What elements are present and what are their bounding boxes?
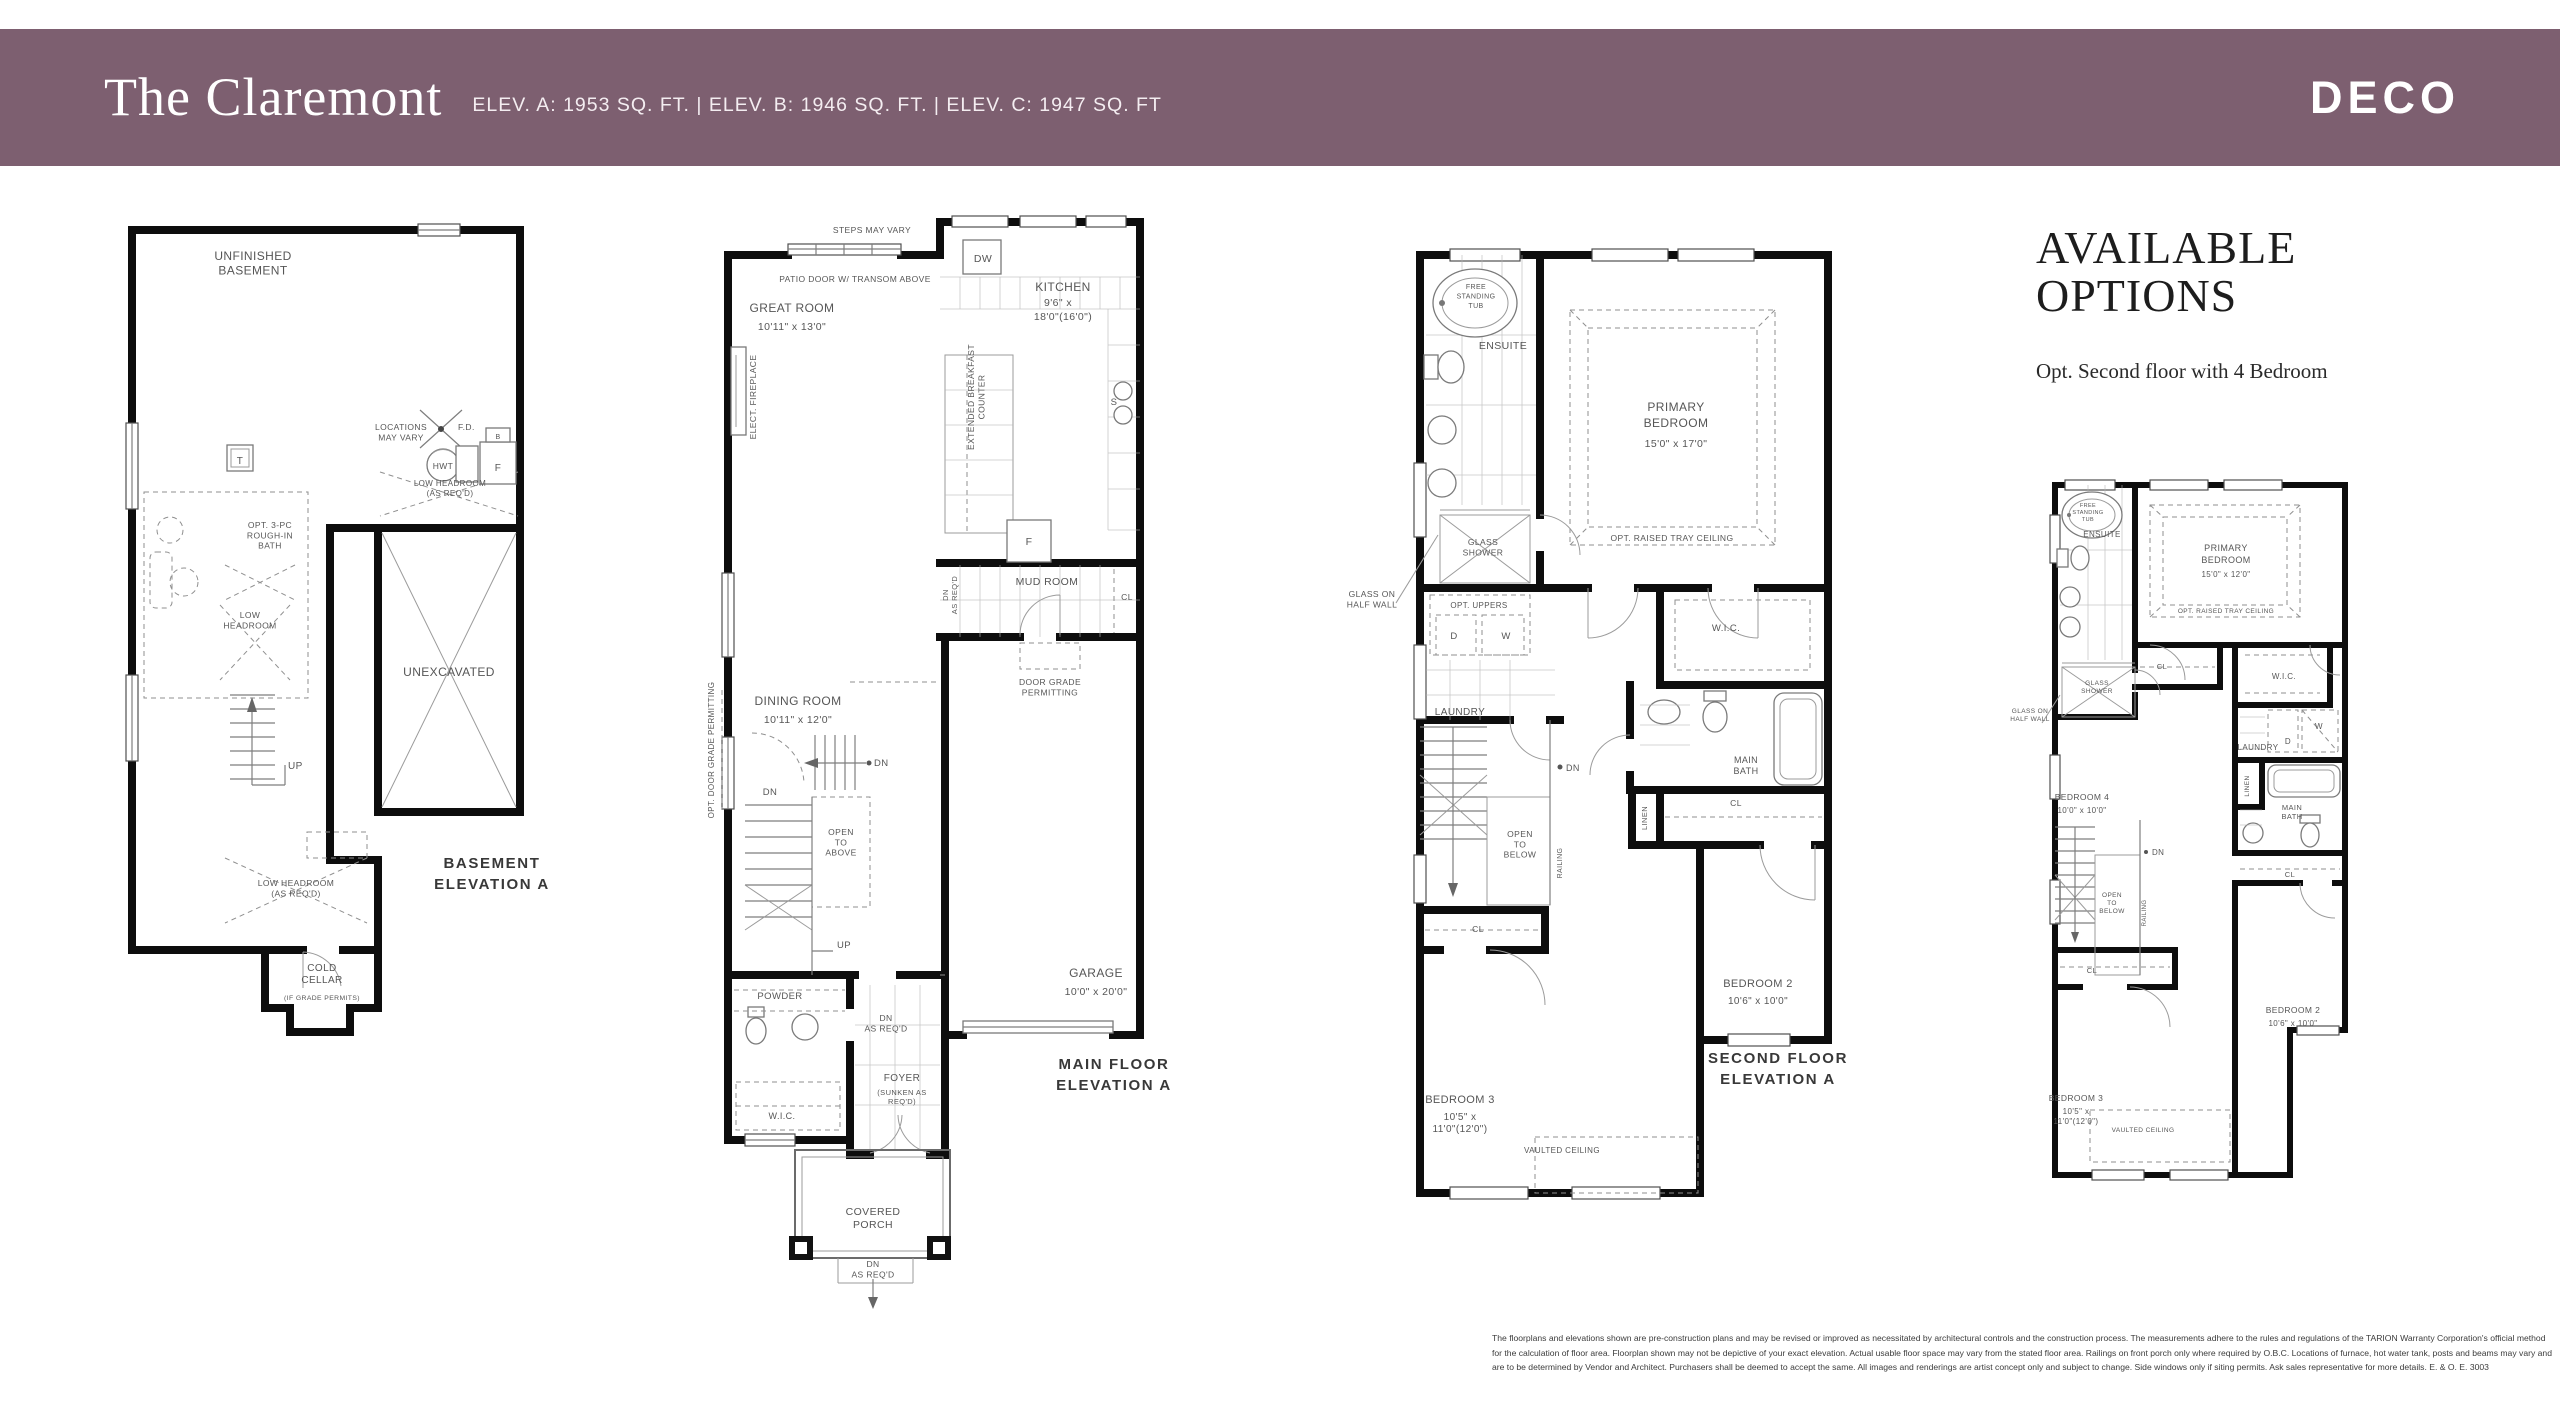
available-options: AVAILABLE OPTIONS Opt. Second floor with… — [2036, 224, 2328, 384]
plan-label: D — [1450, 631, 1457, 642]
main-floor-plan: STEPS MAY VARYPATIO DOOR W/ TRANSOM ABOV… — [690, 185, 1170, 1315]
plan-label: DN — [763, 787, 778, 798]
plan-label: DNAS REQ'D — [851, 1259, 894, 1279]
plan-label: F — [495, 463, 502, 474]
plan-label: DW — [974, 253, 992, 265]
plan-label: UP — [837, 940, 851, 951]
plan-label: UNFINISHEDBASEMENT — [214, 249, 291, 278]
elevation-specs: ELEV. A: 1953 SQ. FT. | ELEV. B: 1946 SQ… — [472, 94, 1161, 117]
plan-label: GARAGE — [1069, 966, 1123, 980]
plan-label: UNEXCAVATED — [403, 665, 495, 679]
plan-label: W — [2315, 722, 2323, 731]
plan-label: BEDROOM 2 — [2266, 1005, 2321, 1015]
main-floor-details — [722, 216, 1140, 1309]
plan-label: DN — [1566, 763, 1580, 773]
plan-label: DINING ROOM — [754, 694, 841, 708]
plan-label: MUD ROOM — [1016, 576, 1079, 588]
second-floor-plan: FREESTANDINGTUBENSUITEGLASS ONHALF WALLG… — [1330, 215, 1900, 1205]
plan-label: CL — [1472, 924, 1484, 934]
plan-label: 9'6" x — [1044, 297, 1072, 309]
plan-label: T — [237, 456, 244, 467]
plan-label: 15'0" x 17'0" — [1645, 438, 1708, 450]
plan-label: COVEREDPORCH — [846, 1206, 901, 1231]
disclaimer: The floorplans and elevations shown are … — [1492, 1331, 2442, 1375]
plan-label: KITCHEN — [1035, 280, 1090, 294]
plan-label: B — [495, 434, 500, 441]
plan-label: PATIO DOOR W/ TRANSOM ABOVE — [779, 274, 931, 284]
plan-label: (IF GRADE PERMITS) — [284, 995, 360, 1002]
plan-label: (SUNKEN ASREQ'D) — [877, 1088, 926, 1106]
basement-details — [126, 224, 518, 988]
floorplan-sheet: { "header": { "title": "The Claremont", … — [0, 0, 2560, 1408]
disclaimer-line: for the calculation of floor area. Floor… — [1492, 1346, 2442, 1361]
plan-label: 10'11" x 12'0" — [764, 714, 832, 726]
plan-label: POWDER — [757, 991, 802, 1002]
plan-label: BASEMENTELEVATION A — [434, 855, 550, 893]
header-bar: The Claremont ELEV. A: 1953 SQ. FT. | EL… — [0, 29, 2560, 166]
plan-label: 15'0" x 12'0" — [2201, 570, 2250, 579]
plan-label: CL — [2157, 662, 2167, 671]
plan-label: GLASS ONHALF WALL — [2010, 708, 2049, 723]
plan-label: UP — [288, 761, 303, 772]
plan-label: OPENTOBELOW — [1504, 829, 1537, 860]
plan-label: OPT. RAISED TRAY CEILING — [1611, 533, 1734, 543]
plan-label: ENSUITE — [1479, 340, 1527, 352]
plan-label: LOWHEADROOM — [223, 610, 276, 630]
plan-label: ELECT. FIREPLACE — [748, 355, 758, 440]
plan-label: MAINBATH — [1734, 755, 1759, 776]
plan-title: The Claremont — [104, 29, 442, 166]
plan-label: CL — [1730, 798, 1742, 808]
plan-label: LAUNDRY — [1435, 707, 1485, 718]
plan-label: GLASSSHOWER — [2081, 680, 2113, 695]
opt-floor-details — [2042, 480, 2340, 1180]
available-options-title: AVAILABLE OPTIONS — [2036, 224, 2328, 321]
plan-label: ENSUITE — [2083, 530, 2120, 539]
main-floor-labels: STEPS MAY VARYPATIO DOOR W/ TRANSOM ABOV… — [707, 225, 1170, 1279]
plan-label: W.I.C. — [1712, 623, 1740, 634]
disclaimer-line: are to be determined by Vendor and Archi… — [1492, 1360, 2442, 1375]
plan-label: VAULTED CEILING — [1524, 1146, 1600, 1155]
plan-label: DNAS REQ'D — [941, 576, 959, 615]
plan-label: FOYER — [884, 1073, 920, 1084]
plan-label: 10'0" x 10'0" — [2057, 806, 2106, 815]
plan-label: COLDCELLAR — [301, 963, 342, 986]
plan-label: DOOR GRADEPERMITTING — [1019, 677, 1081, 697]
plan-label: F.D. — [458, 422, 475, 432]
plan-label: BEDROOM 3 — [2049, 1093, 2104, 1103]
plan-label: S — [1111, 397, 1118, 408]
plan-label: F — [1026, 536, 1033, 548]
plan-label: EXTENDED BREAKFASTCOUNTER — [966, 344, 986, 450]
plan-label: 10'11" x 13'0" — [758, 321, 826, 333]
plan-label: VAULTED CEILING — [2112, 1127, 2175, 1134]
basement-labels: UNFINISHEDBASEMENTTLOCATIONSMAY VARYF.D.… — [214, 249, 550, 1002]
plan-label: LINEN — [2244, 775, 2251, 796]
plan-label: BEDROOM 2 — [1723, 978, 1793, 990]
plan-label: CL — [1121, 592, 1133, 602]
plan-label: PRIMARYBEDROOM — [1644, 400, 1709, 430]
plan-label: MAIN FLOORELEVATION A — [1056, 1056, 1170, 1094]
basement-walls — [132, 230, 520, 1032]
plan-label: OPT. 3-PCROUGH-INBATH — [247, 520, 293, 551]
plan-label: 18'0"(16'0") — [1034, 311, 1092, 323]
plan-label: OPT. RAISED TRAY CEILING — [2178, 608, 2274, 615]
plan-label: 10'6" x 10'0" — [2268, 1019, 2317, 1028]
plan-label: 10'0" x 20'0" — [1065, 986, 1128, 998]
plan-label: LOW HEADROOM(AS REQ'D) — [414, 479, 486, 498]
plan-label: LOCATIONSMAY VARY — [375, 422, 427, 442]
plan-label: D — [2285, 737, 2291, 746]
plan-label: HWT — [433, 461, 454, 471]
plan-label: CL — [2087, 966, 2097, 975]
plan-label: OPENTOABOVE — [825, 827, 856, 858]
plan-label: LAUNDRY — [2238, 743, 2279, 752]
plan-label: OPT. DOOR GRADE PERMITTING — [707, 682, 716, 819]
plan-label: CL — [2285, 870, 2295, 879]
plan-label: DN — [2152, 848, 2164, 857]
plan-label: BEDROOM 3 — [1425, 1094, 1495, 1106]
plan-label: RAILING — [1557, 848, 1564, 879]
plan-label: DN — [874, 758, 889, 769]
plan-label: GREAT ROOM — [750, 301, 835, 315]
optional-second-floor-plan: FREESTANDINGTUBENSUITEGLASS ONHALF WALLG… — [2000, 455, 2430, 1215]
plan-label: W — [1501, 631, 1510, 642]
plan-label: 10'6" x 10'0" — [1728, 996, 1788, 1007]
plan-label: GLASS ONHALF WALL — [1347, 589, 1398, 609]
plan-label: OPENTOBELOW — [2099, 892, 2125, 915]
plan-label: STEPS MAY VARY — [833, 225, 911, 235]
plan-label: RAILING — [2142, 900, 2148, 927]
available-options-subtitle: Opt. Second floor with 4 Bedroom — [2036, 359, 2328, 384]
plan-label: MAINBATH — [2281, 803, 2302, 821]
brand-logo: DECO — [2310, 72, 2460, 124]
plan-label: DNAS REQ'D — [864, 1013, 907, 1033]
plan-label: BEDROOM 4 — [2055, 792, 2110, 802]
plan-label: PRIMARYBEDROOM — [2201, 543, 2250, 565]
plan-label: GLASSSHOWER — [1463, 537, 1504, 557]
basement-plan: UNFINISHEDBASEMENTTLOCATIONSMAY VARYF.D.… — [120, 180, 560, 1050]
plan-label: OPT. UPPERS — [1450, 601, 1507, 610]
plan-label: W.I.C. — [769, 1111, 796, 1121]
plan-label: LOW HEADROOM(AS REQ'D) — [258, 878, 335, 898]
disclaimer-line: The floorplans and elevations shown are … — [1492, 1331, 2442, 1346]
plan-label: LINEN — [1640, 806, 1649, 830]
plan-label: SECOND FLOORELEVATION A — [1708, 1050, 1848, 1088]
plan-label: W.I.C. — [2272, 672, 2296, 681]
plan-label: 10'5" x11'0"(12'0") — [1432, 1112, 1487, 1135]
